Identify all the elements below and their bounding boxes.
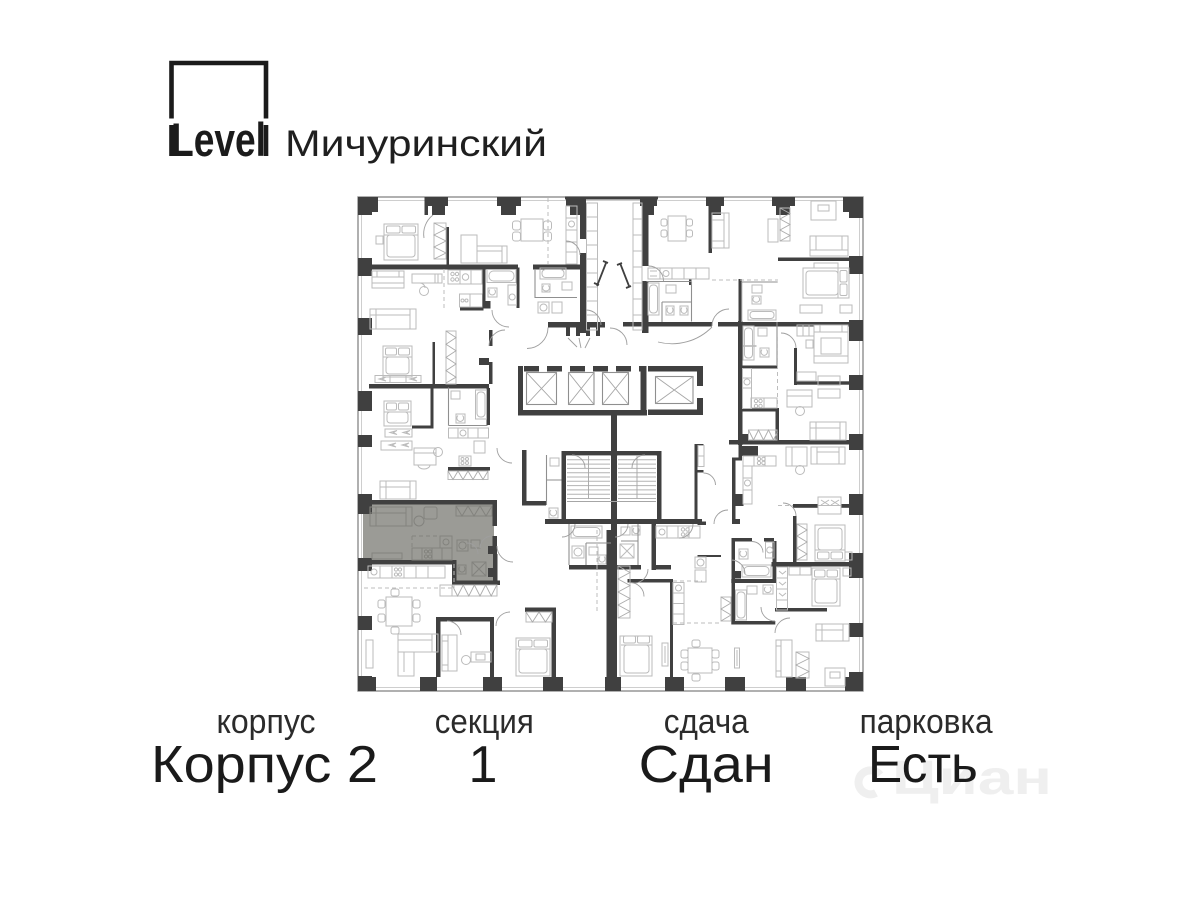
svg-text:Есть: Есть	[868, 736, 978, 794]
svg-text:Level: Level	[171, 113, 266, 166]
svg-text:Мичуринский: Мичуринский	[285, 123, 547, 164]
svg-text:1: 1	[469, 736, 498, 794]
svg-text:Корпус 2: Корпус 2	[151, 736, 378, 794]
svg-text:Сдан: Сдан	[639, 736, 774, 794]
